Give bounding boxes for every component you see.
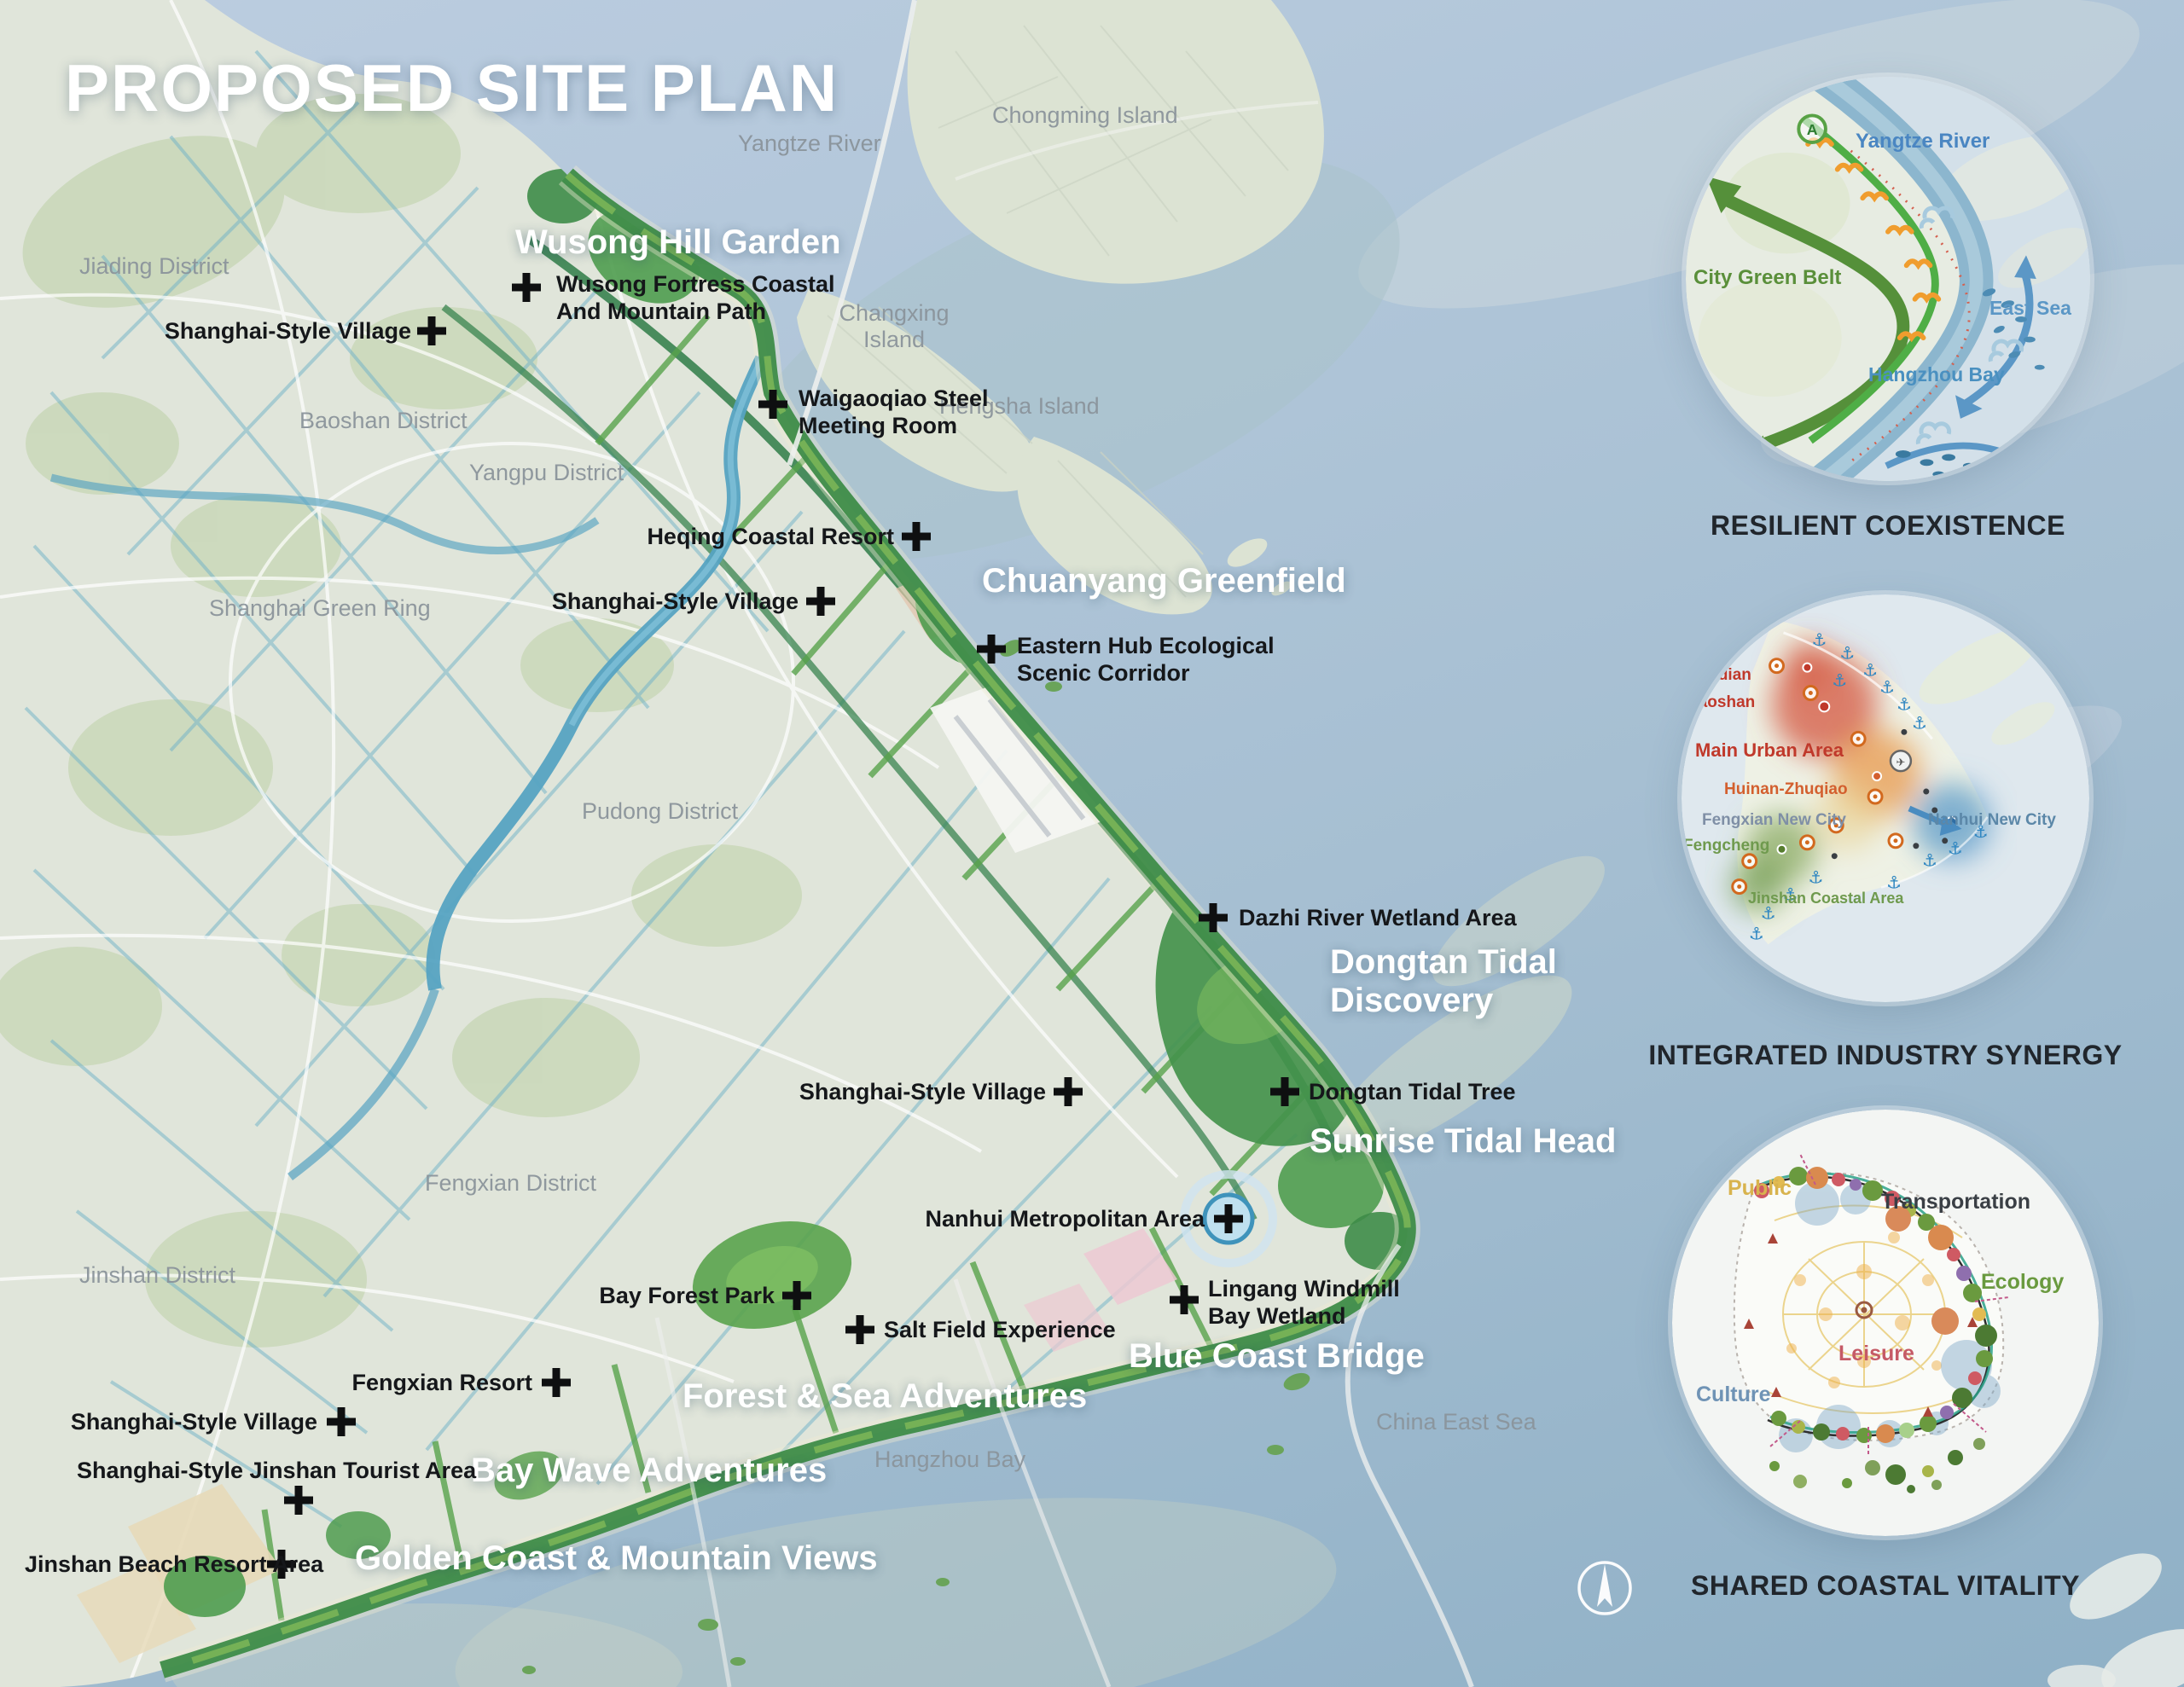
svg-text:A: A xyxy=(1807,121,1818,138)
inset-title: SHARED COASTAL VITALITY xyxy=(1612,1570,2158,1602)
page-title: PROPOSED SITE PLAN xyxy=(65,49,839,127)
inset-resilient-coexistence: A A Yangtze RiverCity Green BeltEast Sea… xyxy=(1686,77,2090,554)
svg-text:⚓: ⚓ xyxy=(1886,873,1902,893)
svg-text:⚓: ⚓ xyxy=(1783,885,1798,905)
svg-text:✈: ✈ xyxy=(1896,757,1906,769)
svg-text:⚓: ⚓ xyxy=(1811,630,1827,650)
proposed-site-plan: PROPOSED SITE PLAN Wusong Hill GardenChu… xyxy=(0,0,2184,1687)
svg-text:⚓: ⚓ xyxy=(1749,924,1764,943)
inset-industry-art: ⚓⚓⚓ ⚓⚓⚓ ⚓⚓⚓ ⚓⚓⚓ ⚓⚓⚓ xyxy=(1682,594,2089,1002)
svg-text:⚓: ⚓ xyxy=(1862,661,1878,681)
svg-text:⚓: ⚓ xyxy=(1832,671,1847,691)
inset-resilient-art: A A xyxy=(1686,77,2090,481)
svg-text:⚓: ⚓ xyxy=(1922,851,1937,871)
svg-text:⚓: ⚓ xyxy=(1761,903,1776,923)
svg-text:⚓: ⚓ xyxy=(1912,713,1927,733)
inset-title: RESILIENT COEXISTENCE xyxy=(1615,510,2161,542)
inset-title: INTEGRATED INDUSTRY SYNERGY xyxy=(1612,1040,2158,1071)
inset-vitality-art xyxy=(1672,1110,2099,1536)
airport-icon: ✈ xyxy=(1891,751,1911,771)
svg-text:⚓: ⚓ xyxy=(1839,644,1855,664)
inset-integrated-industry-synergy: ⚓⚓⚓ ⚓⚓⚓ ⚓⚓⚓ ⚓⚓⚓ ⚓⚓⚓ xyxy=(1682,594,2089,1081)
svg-text:⚓: ⚓ xyxy=(1948,839,1963,859)
compass-icon xyxy=(1574,1557,1635,1619)
svg-text:⚓: ⚓ xyxy=(1896,694,1912,714)
svg-text:A: A xyxy=(1759,449,1769,462)
inset-shared-coastal-vitality: PublicTransportationEcologyLeisureCultur… xyxy=(1672,1110,2099,1613)
svg-text:⚓: ⚓ xyxy=(1808,868,1823,888)
svg-text:⚓: ⚓ xyxy=(1973,822,1989,842)
svg-text:⚓: ⚓ xyxy=(1879,678,1895,698)
